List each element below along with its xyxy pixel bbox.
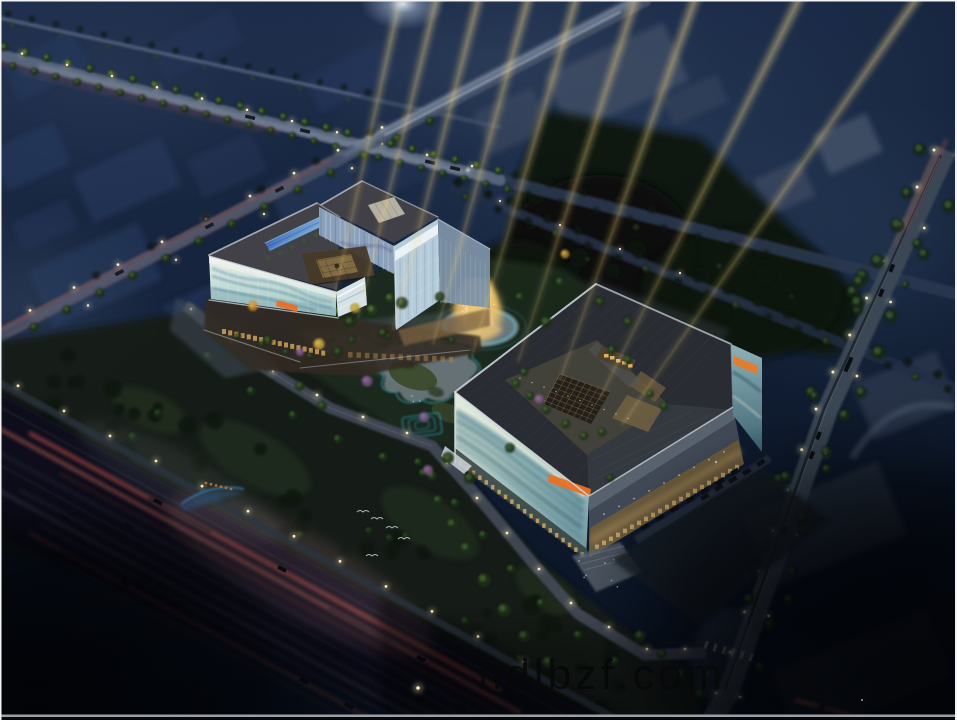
svg-text:hdlbzf.com: hdlbzf.com — [478, 651, 726, 699]
